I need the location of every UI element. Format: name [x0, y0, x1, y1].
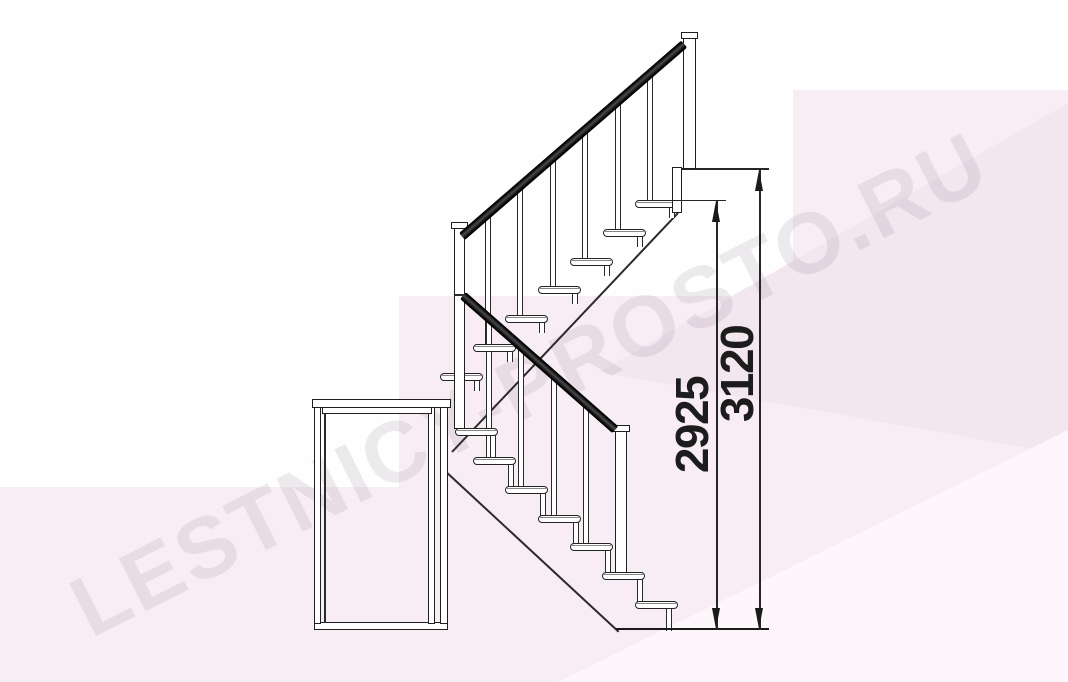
lower-baluster — [583, 403, 589, 545]
upper-tread — [570, 258, 613, 266]
arrow-down-3120 — [755, 608, 763, 629]
lower-newel-post — [615, 431, 627, 573]
tread-strut — [474, 380, 480, 391]
lower-baluster — [551, 375, 557, 517]
platform-apron — [322, 407, 432, 414]
top-newel-cap — [681, 32, 698, 39]
top-newel-post — [683, 38, 696, 169]
upper-baluster — [517, 187, 523, 317]
tread-strut — [540, 493, 546, 517]
landing-fascia — [672, 167, 682, 213]
tread-strut — [508, 464, 514, 488]
tread-strut — [573, 522, 579, 545]
lower-tread — [473, 457, 516, 465]
lower-tread — [570, 543, 613, 551]
tread-strut — [572, 293, 578, 304]
lower-tread — [635, 601, 678, 609]
tread-strut — [539, 322, 545, 333]
dimension-label-2925: 2925 — [669, 377, 715, 473]
floor-line — [616, 628, 769, 630]
lower-tread — [538, 515, 581, 523]
platform-left-leg — [314, 407, 321, 624]
platform-top-slab — [312, 399, 451, 408]
tread-strut — [637, 579, 643, 603]
lower-tread — [455, 428, 498, 436]
upper-tread — [538, 286, 581, 294]
platform-left-leg-inner-line — [324, 413, 326, 623]
platform-right-leg — [428, 407, 435, 624]
tread-strut — [637, 236, 643, 247]
upper-tread — [473, 344, 516, 352]
arrow-down-2925 — [712, 608, 720, 629]
arrow-up-2925 — [712, 201, 720, 222]
staircase-drawing-canvas: LESTNICY-PROSTO.RU — [0, 0, 1068, 682]
upper-baluster — [647, 75, 653, 202]
dimension-label-3120: 3120 — [714, 326, 760, 422]
tread-strut — [490, 435, 496, 459]
upper-tread — [603, 229, 646, 237]
tread-strut — [507, 351, 513, 362]
upper-baluster — [615, 102, 621, 231]
lower-tread — [602, 572, 645, 580]
upper-baluster — [582, 131, 588, 260]
middle-newel-post — [454, 228, 465, 429]
lower-baluster — [518, 346, 524, 488]
upper-tread — [505, 315, 548, 323]
tread-strut — [604, 265, 610, 276]
platform-support-post — [440, 407, 448, 624]
upper-baluster — [550, 158, 556, 288]
lower-tread — [505, 486, 548, 494]
arrow-up-3120 — [755, 170, 763, 191]
tread-strut — [605, 550, 611, 574]
